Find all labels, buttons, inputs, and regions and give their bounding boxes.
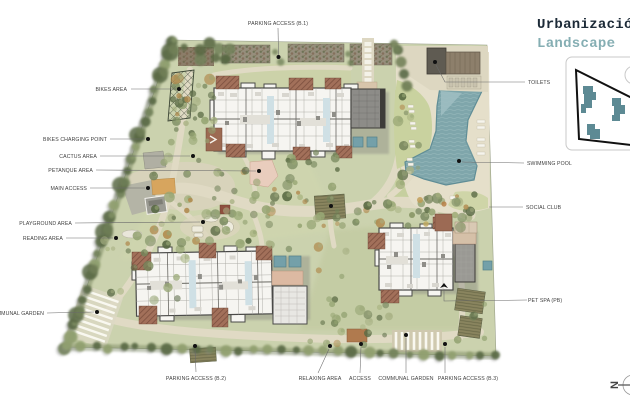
svg-text:ACCESS: ACCESS: [349, 376, 371, 382]
svg-text:BIKES CHARGING POINT: BIKES CHARGING POINT: [43, 137, 108, 143]
svg-text:MAIN ACCESS: MAIN ACCESS: [50, 186, 87, 192]
svg-text:SOCIAL CLUB: SOCIAL CLUB: [526, 205, 562, 211]
svg-text:PARKING ACCESS (B.1): PARKING ACCESS (B.1): [248, 21, 308, 27]
svg-text:TOILETS: TOILETS: [528, 80, 551, 86]
svg-text:Urbanización: Urbanización: [537, 17, 630, 33]
svg-text:CACTUS AREA: CACTUS AREA: [59, 154, 97, 160]
svg-text:SWIMMING POOL: SWIMMING POOL: [527, 161, 572, 167]
svg-text:Landscape: Landscape: [537, 36, 615, 52]
svg-text:COMMUNAL GARDEN: COMMUNAL GARDEN: [0, 311, 44, 317]
svg-text:N: N: [609, 381, 621, 389]
svg-text:RELAXING AREA: RELAXING AREA: [299, 376, 342, 382]
svg-text:PARKING ACCESS (B.3): PARKING ACCESS (B.3): [438, 376, 498, 382]
svg-text:PARKING ACCESS (B.2): PARKING ACCESS (B.2): [166, 376, 226, 382]
svg-text:PETANQUE AREA: PETANQUE AREA: [48, 168, 93, 174]
svg-text:PET SPA (PB): PET SPA (PB): [528, 298, 562, 304]
svg-text:PLAYGROUND AREA: PLAYGROUND AREA: [19, 221, 72, 227]
svg-text:BIKES AREA: BIKES AREA: [95, 87, 127, 93]
svg-text:COMMUNAL GARDEN: COMMUNAL GARDEN: [378, 376, 433, 382]
svg-text:READING AREA: READING AREA: [23, 236, 64, 242]
